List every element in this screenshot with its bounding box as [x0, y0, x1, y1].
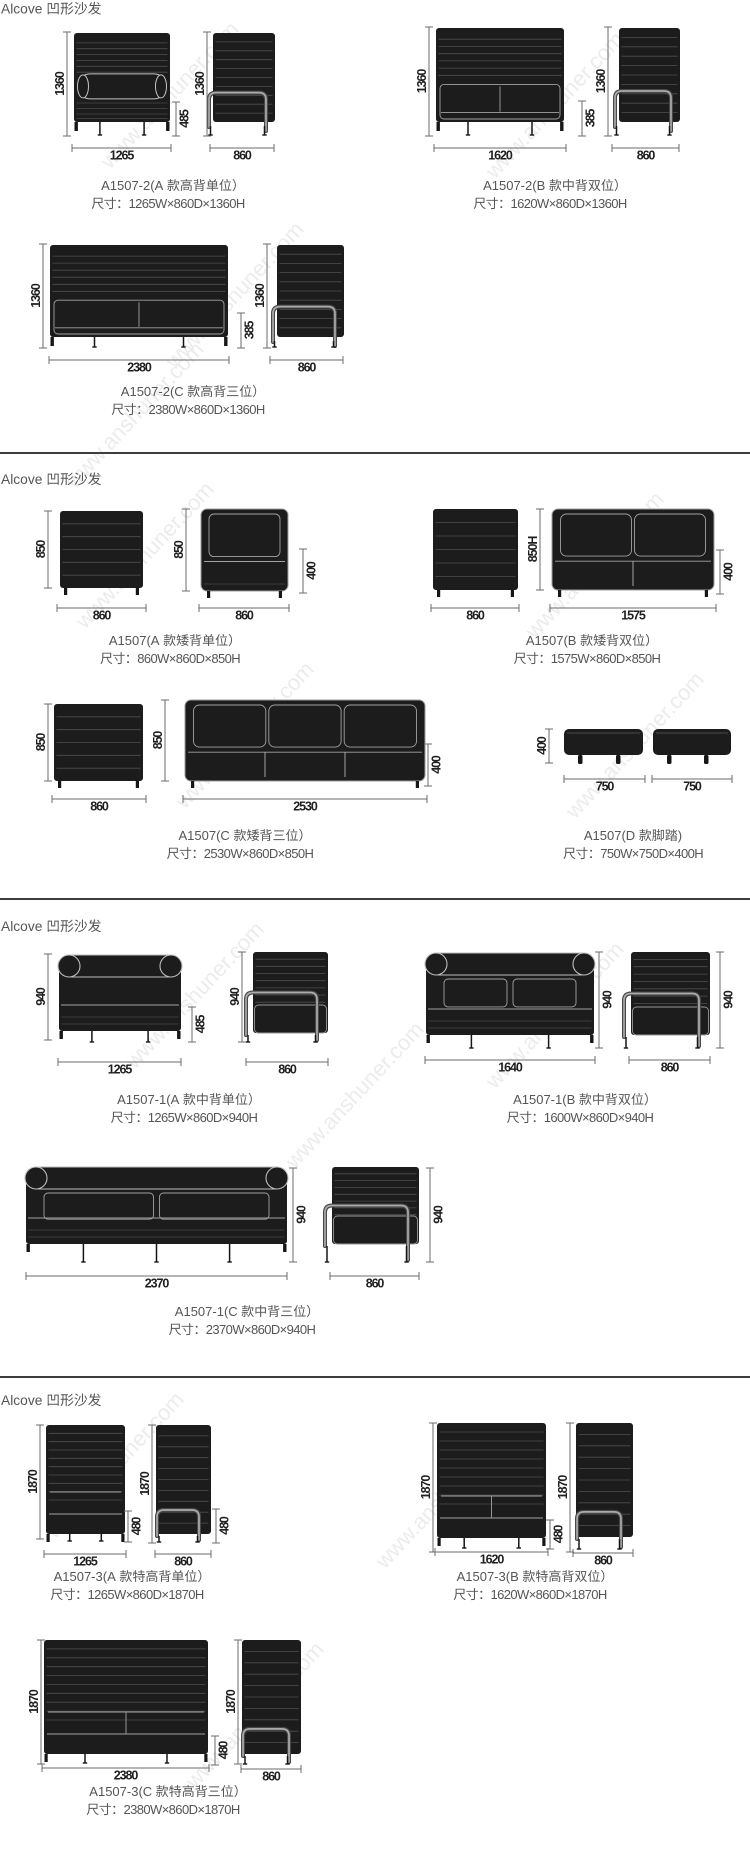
- svg-text:2530W×860D×850H: 2530W×860D×850H: [204, 846, 314, 861]
- svg-text:940: 940: [721, 990, 735, 1009]
- svg-text:480: 480: [216, 1741, 230, 1760]
- svg-text:860: 860: [637, 149, 656, 163]
- svg-text:1870: 1870: [419, 1475, 433, 1500]
- svg-text:860: 860: [594, 1554, 613, 1568]
- svg-text:860: 860: [235, 609, 254, 623]
- svg-text:): ): [678, 828, 682, 843]
- svg-text:A1507(C: A1507(C: [179, 828, 230, 843]
- svg-text:860: 860: [262, 1770, 281, 1784]
- svg-text:A1507-3(C: A1507-3(C: [89, 1784, 152, 1799]
- svg-text:1620W×860D×1870H: 1620W×860D×1870H: [491, 1587, 607, 1602]
- svg-text:400: 400: [535, 736, 549, 755]
- svg-text:2530: 2530: [293, 800, 318, 814]
- svg-text:1360: 1360: [29, 283, 43, 308]
- svg-text:1620: 1620: [488, 149, 513, 163]
- svg-text:1870: 1870: [26, 1469, 40, 1494]
- svg-text:A1507-1(B: A1507-1(B: [513, 1092, 575, 1107]
- svg-text:385: 385: [583, 109, 597, 128]
- svg-text:1870: 1870: [556, 1475, 570, 1500]
- svg-text:2380: 2380: [127, 361, 152, 375]
- svg-text:A1507(B: A1507(B: [526, 633, 577, 648]
- svg-text:A1507(A: A1507(A: [109, 633, 160, 648]
- svg-text:Alcove: Alcove: [1, 919, 43, 934]
- svg-text:A1507-3(B: A1507-3(B: [457, 1569, 519, 1584]
- svg-text:A1507-1(C: A1507-1(C: [175, 1304, 238, 1319]
- svg-text:1600W×860D×940H: 1600W×860D×940H: [544, 1110, 654, 1125]
- svg-text:750: 750: [596, 780, 615, 794]
- svg-text:A1507-2(A: A1507-2(A: [101, 178, 163, 193]
- svg-text:1265: 1265: [73, 1555, 98, 1569]
- svg-text:A1507-3(A: A1507-3(A: [54, 1569, 116, 1584]
- svg-text:860: 860: [90, 800, 109, 814]
- svg-text:1620: 1620: [480, 1553, 505, 1567]
- svg-text:940: 940: [34, 987, 48, 1006]
- svg-text:1575W×860D×850H: 1575W×860D×850H: [551, 651, 661, 666]
- svg-text:860W×860D×850H: 860W×860D×850H: [137, 651, 240, 666]
- svg-text:1265W×860D×1870H: 1265W×860D×1870H: [88, 1587, 204, 1602]
- svg-text:Alcove: Alcove: [1, 2, 43, 17]
- svg-text:940: 940: [600, 990, 614, 1009]
- svg-text:1870: 1870: [138, 1471, 152, 1496]
- svg-text:940: 940: [431, 1205, 445, 1224]
- svg-text:A1507-1(A: A1507-1(A: [117, 1092, 179, 1107]
- svg-text:860: 860: [661, 1061, 680, 1075]
- svg-text:400: 400: [429, 755, 443, 774]
- svg-text:1620W×860D×1360H: 1620W×860D×1360H: [511, 196, 627, 211]
- svg-text:2370W×860D×940H: 2370W×860D×940H: [206, 1322, 316, 1337]
- svg-text:1265W×860D×940H: 1265W×860D×940H: [148, 1110, 258, 1125]
- svg-text:1870: 1870: [27, 1689, 41, 1714]
- svg-text:860: 860: [93, 609, 112, 623]
- svg-text:400: 400: [721, 562, 735, 581]
- svg-text:860: 860: [174, 1555, 193, 1569]
- svg-text:A1507(D: A1507(D: [584, 828, 635, 843]
- svg-text:480: 480: [217, 1516, 231, 1535]
- svg-text:485: 485: [193, 1015, 207, 1034]
- svg-text:850: 850: [151, 731, 165, 750]
- svg-text:1360: 1360: [594, 69, 608, 94]
- svg-text:2380W×860D×1360H: 2380W×860D×1360H: [149, 402, 265, 417]
- svg-text:1640: 1640: [498, 1061, 523, 1075]
- svg-text:860: 860: [278, 1063, 297, 1077]
- svg-text:940: 940: [294, 1205, 308, 1224]
- svg-text:860: 860: [298, 361, 317, 375]
- svg-text:Alcove: Alcove: [1, 1393, 43, 1408]
- svg-text:850: 850: [34, 733, 48, 752]
- svg-text:860: 860: [233, 149, 252, 163]
- svg-text:385: 385: [242, 321, 256, 340]
- svg-text:1265: 1265: [108, 1063, 133, 1077]
- svg-text:1360: 1360: [415, 69, 429, 94]
- svg-text:2380: 2380: [114, 1769, 139, 1783]
- svg-text:400: 400: [304, 561, 318, 580]
- svg-text:940: 940: [228, 987, 242, 1006]
- svg-text:480: 480: [551, 1525, 565, 1544]
- svg-text:750W×750D×400H: 750W×750D×400H: [600, 846, 703, 861]
- svg-text:A1507-2(B: A1507-2(B: [483, 178, 545, 193]
- svg-text:850H: 850H: [526, 536, 540, 563]
- svg-text:1265W×860D×1360H: 1265W×860D×1360H: [129, 196, 245, 211]
- svg-text:2380W×860D×1870H: 2380W×860D×1870H: [124, 1802, 240, 1817]
- svg-text:485: 485: [177, 109, 191, 128]
- svg-text:A1507-2(C: A1507-2(C: [121, 384, 184, 399]
- svg-text:1575: 1575: [621, 609, 646, 623]
- svg-text:2370: 2370: [145, 1277, 170, 1291]
- svg-text:1360: 1360: [193, 71, 207, 96]
- svg-text:850: 850: [172, 540, 186, 559]
- svg-text:Alcove: Alcove: [1, 472, 43, 487]
- svg-text:850: 850: [34, 540, 48, 559]
- svg-text:480: 480: [129, 1517, 143, 1536]
- svg-text:860: 860: [366, 1277, 385, 1291]
- svg-text:1870: 1870: [224, 1689, 238, 1714]
- svg-text:1265: 1265: [110, 149, 135, 163]
- svg-text:www.anshuner.com: www.anshuner.com: [280, 1017, 429, 1174]
- svg-text:1360: 1360: [53, 71, 67, 96]
- svg-text:750: 750: [683, 780, 702, 794]
- svg-text:1360: 1360: [253, 283, 267, 308]
- svg-text:860: 860: [466, 609, 485, 623]
